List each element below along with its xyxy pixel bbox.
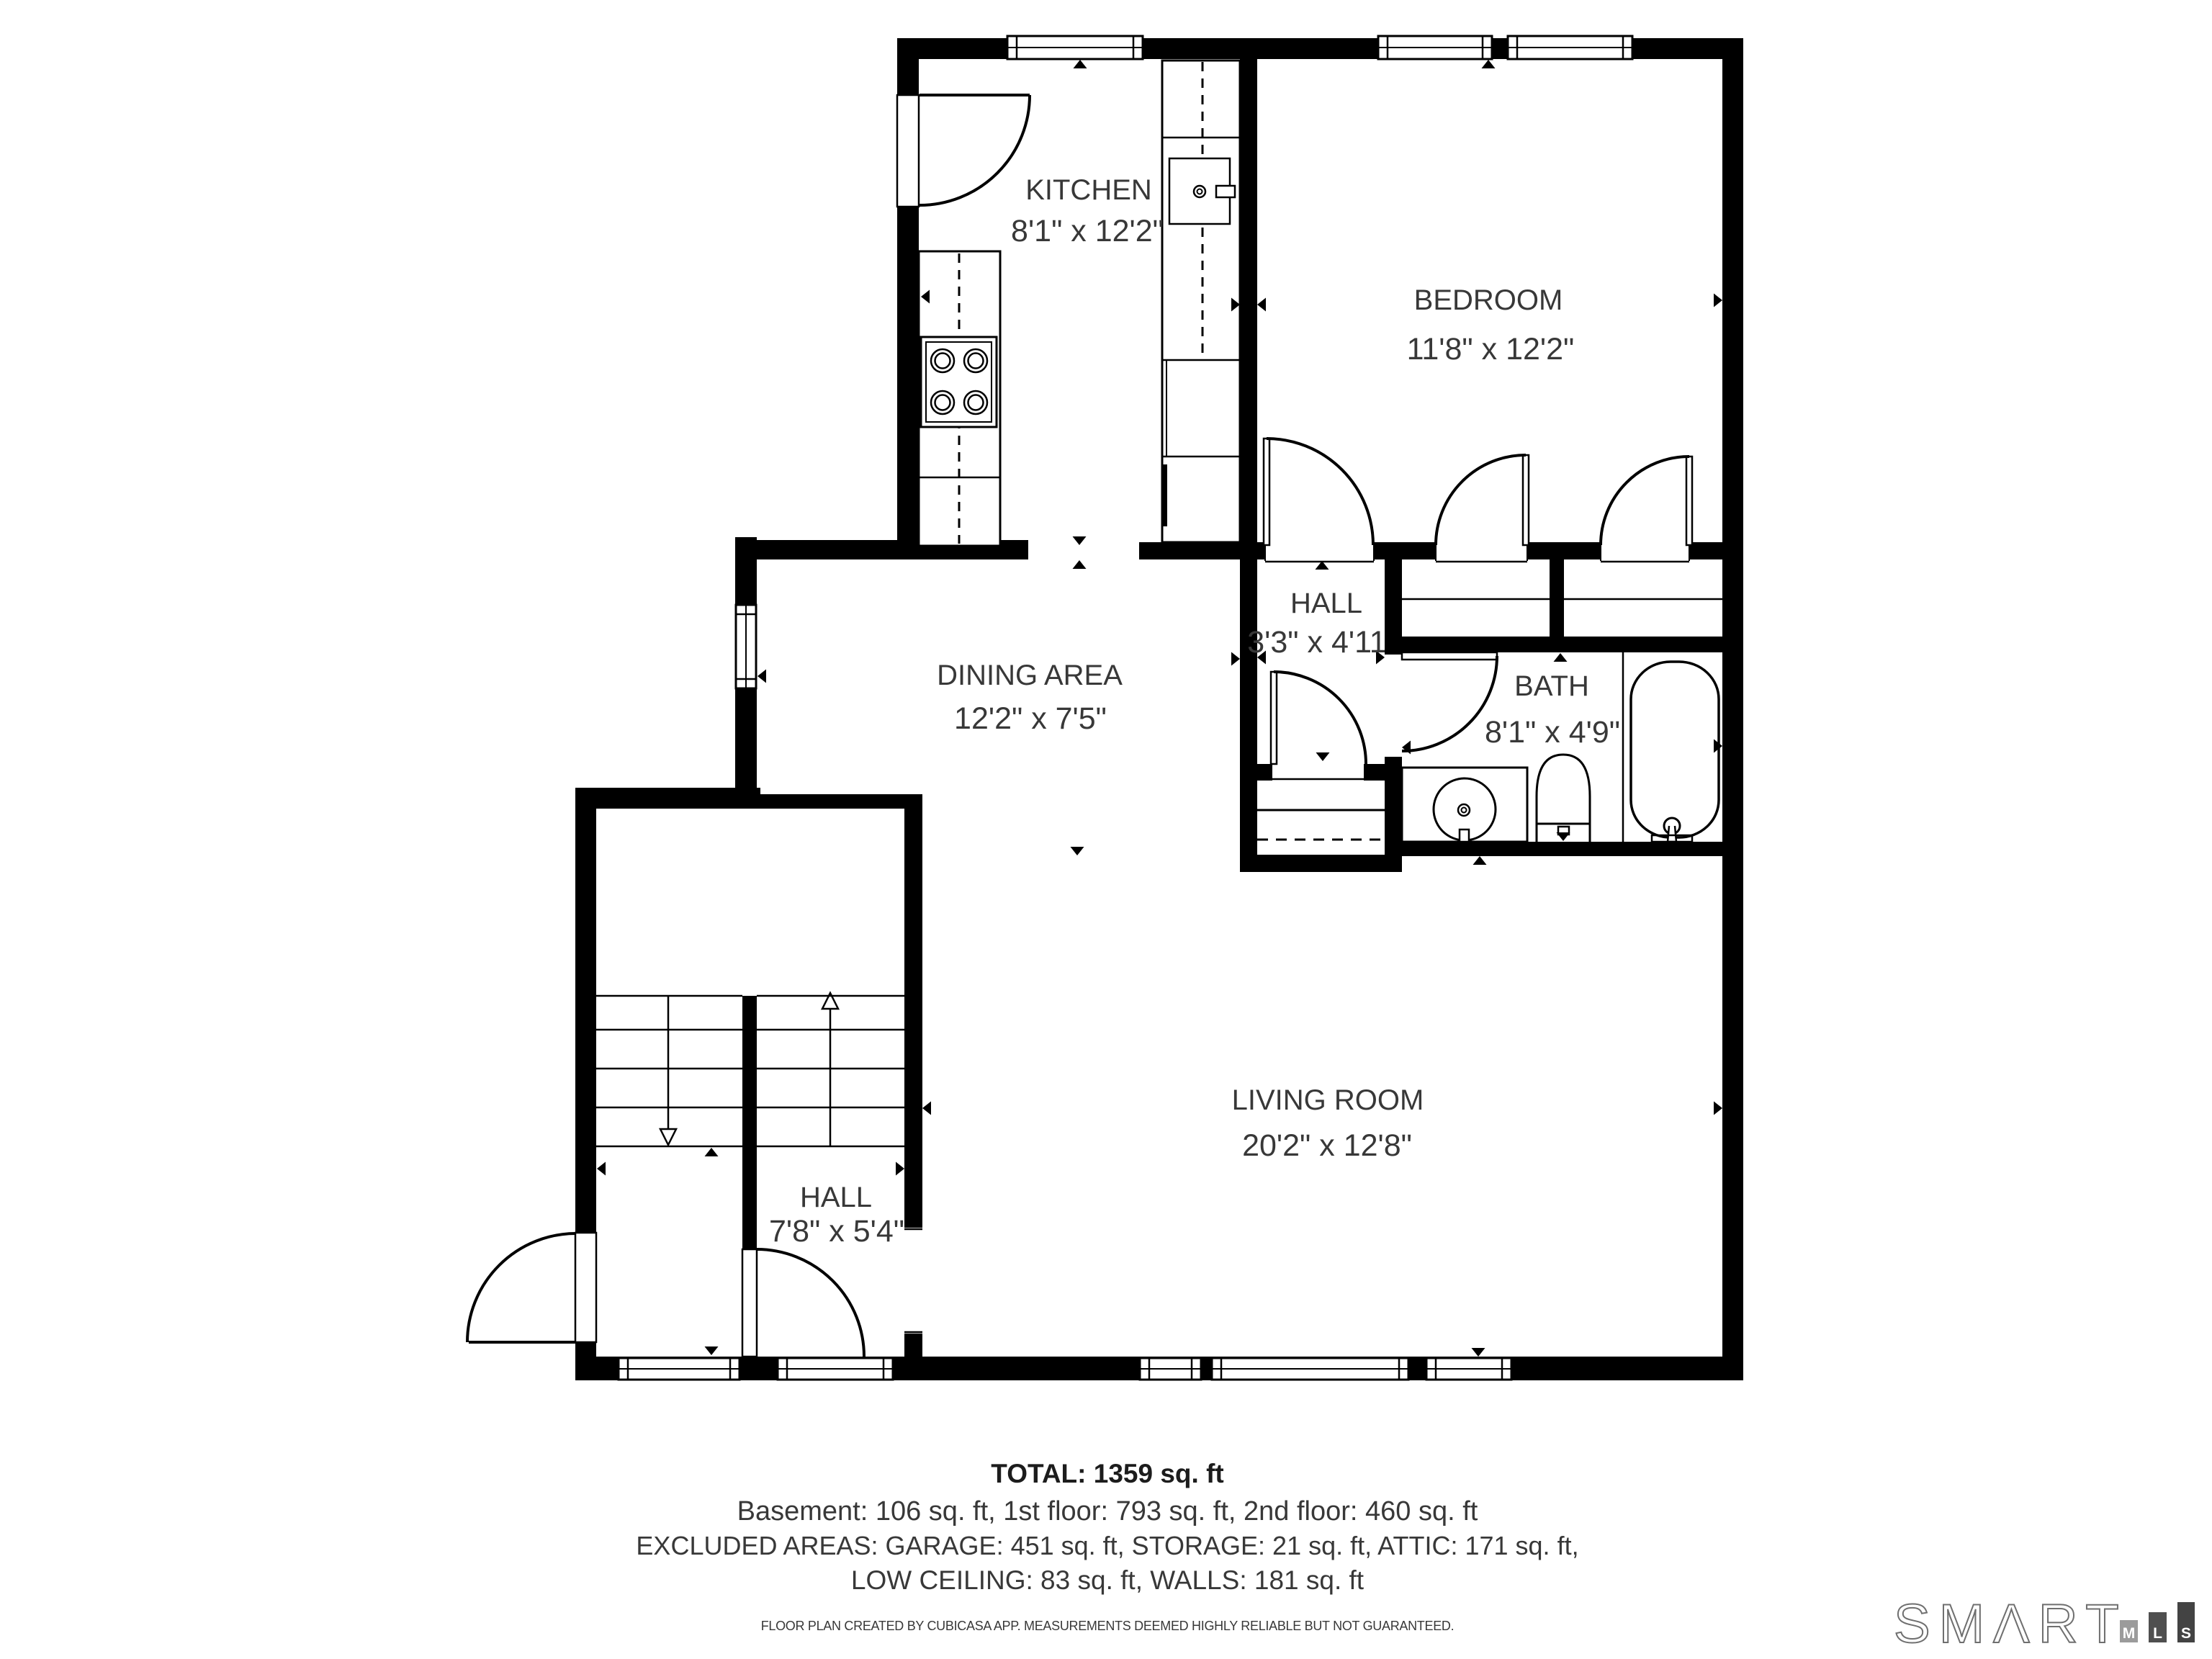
svg-text:EXCLUDED AREAS: GARAGE: 451 sq: EXCLUDED AREAS: GARAGE: 451 sq. ft, STOR… (636, 1531, 1578, 1560)
svg-text:DINING AREA: DINING AREA (937, 660, 1123, 691)
svg-text:Basement: 106 sq. ft, 1st floo: Basement: 106 sq. ft, 1st floor: 793 sq.… (737, 1496, 1478, 1527)
svg-text:BATH: BATH (1514, 670, 1589, 702)
svg-text:KITCHEN: KITCHEN (1025, 174, 1152, 206)
svg-text:LIVING ROOM: LIVING ROOM (1232, 1084, 1424, 1116)
svg-text:SMΛRT: SMΛRT (1894, 1593, 2128, 1655)
svg-text:7'8" x 5'4": 7'8" x 5'4" (769, 1214, 904, 1249)
svg-text:8'1" x 12'2": 8'1" x 12'2" (1011, 214, 1164, 248)
svg-text:HALL: HALL (1290, 588, 1362, 619)
svg-text:TOTAL: 1359 sq. ft: TOTAL: 1359 sq. ft (991, 1459, 1223, 1488)
svg-text:BEDROOM: BEDROOM (1414, 284, 1563, 316)
svg-text:11'8" x 12'2": 11'8" x 12'2" (1407, 332, 1575, 367)
svg-text:LOW CEILING: 83 sq. ft, WALLS:: LOW CEILING: 83 sq. ft, WALLS: 181 sq. f… (851, 1565, 1364, 1595)
svg-text:M: M (2123, 1625, 2136, 1642)
svg-text:20'2" x 12'8": 20'2" x 12'8" (1242, 1128, 1412, 1163)
svg-text:12'2" x 7'5": 12'2" x 7'5" (954, 701, 1107, 736)
svg-text:FLOOR PLAN CREATED BY CUBICASA: FLOOR PLAN CREATED BY CUBICASA APP. MEAS… (761, 1619, 1455, 1633)
svg-text:8'1" x 4'9": 8'1" x 4'9" (1485, 715, 1620, 750)
svg-text:S: S (2181, 1625, 2191, 1642)
svg-text:L: L (2153, 1625, 2162, 1642)
svg-text:3'3" x 4'11: 3'3" x 4'11 (1247, 625, 1386, 660)
svg-text:HALL: HALL (800, 1182, 872, 1213)
